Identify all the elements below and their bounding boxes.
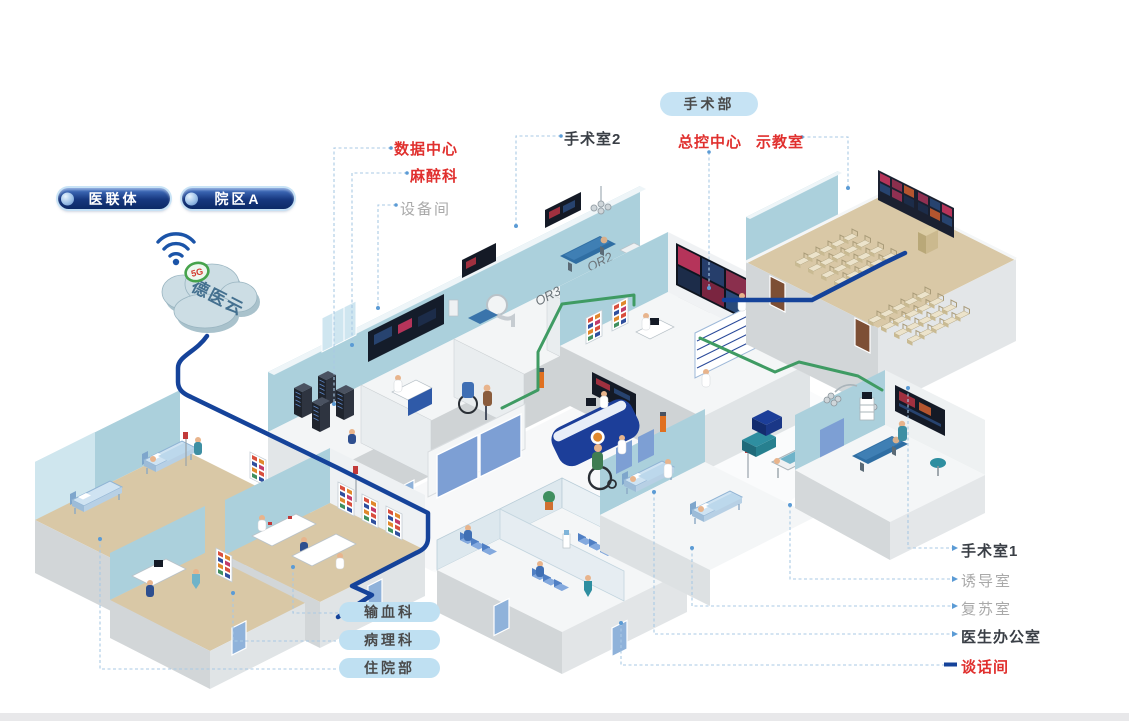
wifi-icon xyxy=(158,234,194,256)
cloud-icon: 德医云 5G xyxy=(162,260,260,333)
anesthesia-label: 麻醉科 xyxy=(410,165,458,186)
water-cooler xyxy=(563,530,570,548)
inpatient-pill[interactable]: 住院部 xyxy=(339,658,440,678)
operating-room-1-label: 手术室1 xyxy=(961,540,1018,561)
equipment-cart xyxy=(860,392,874,420)
master-control-label: 总控中心 xyxy=(678,131,742,152)
demo-room-label: 示教室 xyxy=(756,131,804,152)
bottom-edge-strip xyxy=(0,713,1129,721)
operating-room-2-label: 手术室2 xyxy=(564,128,621,149)
blood-transfusion-pill[interactable]: 输血科 xyxy=(339,602,440,622)
isometric-illustration: OR3 OR2 xyxy=(0,0,1129,721)
talk-room-label: 谈话间 xyxy=(961,656,1009,677)
pathology-pill[interactable]: 病理科 xyxy=(339,630,440,650)
surgery-department-pill[interactable]: 手术部 xyxy=(660,92,758,116)
hospital-isometric-diagram: OR3 OR2 xyxy=(0,0,1129,721)
recovery-room-label: 复苏室 xyxy=(961,598,1012,619)
equipment-room-label: 设备间 xyxy=(400,198,451,219)
data-center-label: 数据中心 xyxy=(394,138,458,159)
doctor-office-label: 医生办公室 xyxy=(961,626,1041,647)
campus-a-pill[interactable]: 院区A xyxy=(182,188,294,209)
induction-room-label: 诱导室 xyxy=(961,570,1012,591)
cloud-network: 德医云 5G xyxy=(158,234,260,333)
medical-alliance-pill[interactable]: 医联体 xyxy=(58,188,170,209)
